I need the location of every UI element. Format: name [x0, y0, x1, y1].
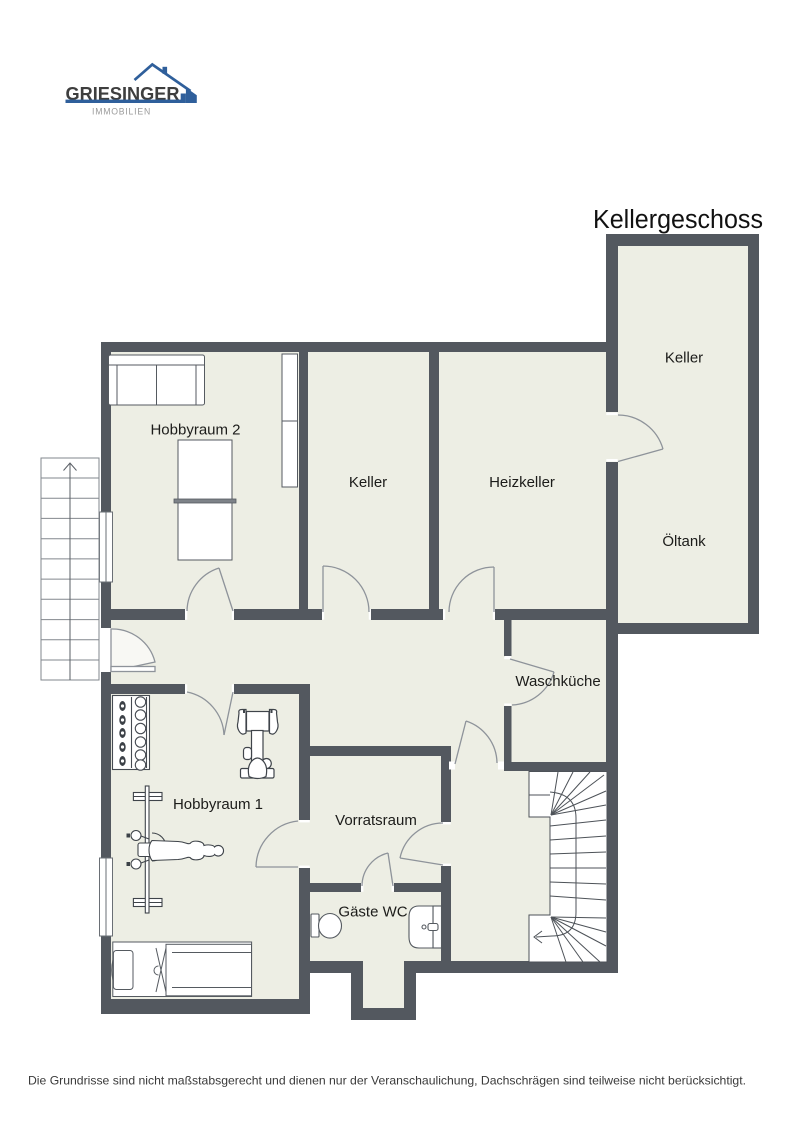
svg-text:Waschküche: Waschküche: [515, 673, 600, 690]
svg-text:Die Grundrisse sind nicht maßs: Die Grundrisse sind nicht maßstabsgerech…: [28, 1074, 746, 1088]
svg-text:Kellergeschoss: Kellergeschoss: [593, 206, 763, 234]
svg-text:Hobbyraum 2: Hobbyraum 2: [150, 422, 240, 439]
svg-text:Öltank: Öltank: [662, 532, 706, 550]
svg-text:Keller: Keller: [665, 350, 703, 367]
svg-text:Gäste WC: Gäste WC: [338, 904, 407, 921]
svg-text:Vorratsraum: Vorratsraum: [335, 812, 417, 829]
svg-text:Heizkeller: Heizkeller: [489, 474, 555, 491]
svg-text:Keller: Keller: [349, 474, 387, 491]
svg-text:Hobbyraum 1: Hobbyraum 1: [173, 796, 263, 813]
svg-text:IMMOBILIEN: IMMOBILIEN: [92, 107, 151, 117]
